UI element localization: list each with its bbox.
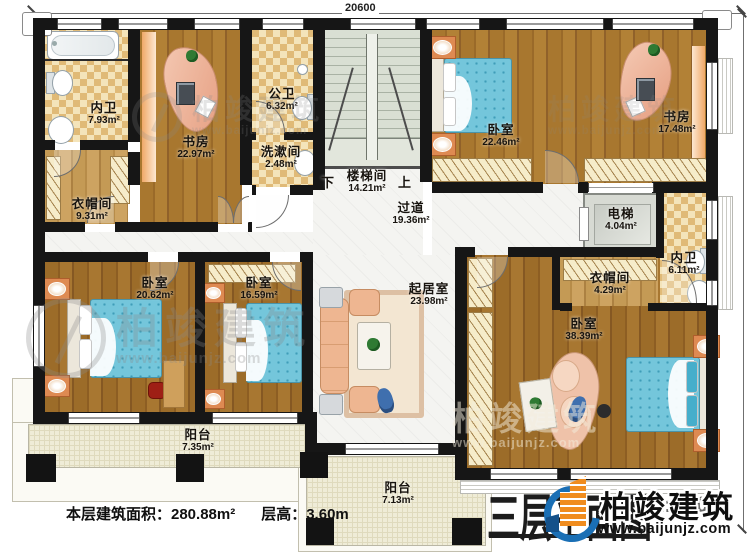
pillow (443, 97, 456, 126)
stair-down-label: 下 (321, 172, 334, 191)
pillow (686, 361, 698, 393)
bed-sheet (90, 318, 116, 376)
wall (578, 182, 588, 193)
wall (420, 30, 432, 182)
wall (45, 140, 55, 150)
floor-area-text: 本层建筑面积：280.88m² (66, 503, 235, 524)
wall (252, 185, 256, 195)
divider (45, 59, 128, 61)
side-table (319, 287, 343, 308)
side-table (319, 394, 343, 415)
right-dimension-line (743, 16, 744, 532)
room-label-master-bedroom: 卧室38.39m² (554, 318, 614, 342)
room-label-study-right: 书房17.48m² (648, 111, 706, 135)
armchair (349, 386, 380, 413)
wall (248, 222, 252, 232)
window (707, 62, 717, 130)
elevator-door (579, 207, 589, 241)
room-label-closet-right: 衣帽间4.29m² (580, 272, 640, 296)
room-label-bathroom-right: 内卫6.11m² (660, 252, 708, 276)
plant (186, 50, 198, 62)
room-label-corridor: 过道19.36m² (386, 202, 436, 226)
window (34, 305, 44, 367)
nightstand (44, 278, 70, 300)
pillar (300, 452, 328, 478)
wall (252, 132, 256, 140)
pillow (235, 308, 247, 338)
wall (313, 30, 325, 190)
window-sill (718, 196, 733, 310)
pillow (79, 305, 92, 335)
room-label-washroom: 洗漱间2.48m² (252, 146, 310, 170)
wall (455, 247, 467, 443)
wall (300, 252, 313, 262)
window (118, 19, 168, 29)
wall (128, 152, 140, 185)
window (262, 19, 304, 29)
nightstand (44, 375, 70, 397)
wardrobe (432, 158, 532, 182)
wall (560, 303, 572, 311)
elevator-entry (588, 183, 654, 192)
window (506, 19, 604, 29)
stair-rail (366, 34, 378, 160)
wall (240, 30, 252, 185)
room-label-balcony-center: 阳台7.13m² (372, 482, 424, 506)
decor-table (519, 378, 558, 432)
wardrobe (468, 312, 493, 466)
side-table (597, 404, 611, 418)
toilet (52, 70, 73, 96)
company-website: www.baijunjz.com (598, 521, 731, 537)
wardrobe (584, 158, 708, 182)
window (57, 19, 102, 29)
window (707, 280, 717, 306)
shower-head (297, 64, 308, 75)
window (426, 19, 480, 29)
floor-plan: 20600 15500 (0, 0, 750, 556)
room-label-bedroom-bl: 卧室20.62m² (126, 277, 184, 301)
pillar (452, 518, 482, 545)
sliding-door (345, 444, 439, 454)
window (212, 413, 298, 423)
wall (652, 182, 718, 193)
wall (284, 132, 313, 140)
room-label-wc: 公卫6.32m² (258, 88, 306, 112)
room-label-bedroom-tr: 卧室22.46m² (472, 124, 530, 148)
window (68, 413, 140, 423)
nightstand (429, 133, 456, 156)
floor-height-text: 层高：3.60m (261, 503, 349, 524)
armchair (349, 289, 380, 316)
pillow (686, 395, 698, 427)
cabinet (692, 46, 705, 158)
wall (115, 222, 218, 232)
room-label-study-left: 书房22.97m² (168, 136, 224, 160)
room-label-staircase: 楼梯间14.21m² (338, 170, 396, 194)
wall (33, 252, 148, 262)
wall (302, 252, 313, 412)
door-arc (256, 195, 289, 228)
footer-stats: 本层建筑面积：280.88m² 层高：3.60m (66, 503, 349, 524)
window (707, 200, 717, 240)
wall (128, 30, 140, 142)
room-label-bathroom-tl: 内卫7.93m² (80, 102, 128, 126)
pillow (79, 339, 92, 369)
nightstand (202, 389, 225, 409)
chaise-cushion (552, 360, 580, 392)
dim-tick (737, 524, 747, 534)
corridor-floor (45, 232, 315, 252)
cabinet (142, 32, 156, 182)
top-dimension-label: 20600 (342, 2, 379, 14)
company-logo-icon (544, 474, 600, 540)
sofa (320, 298, 349, 394)
bathtub (47, 31, 119, 60)
stair-up-label: 上 (398, 172, 411, 191)
wall (178, 252, 270, 262)
pillow (235, 342, 247, 372)
bed-sheet (246, 320, 268, 381)
room-label-closet-left: 衣帽间9.31m² (62, 198, 122, 222)
window (350, 19, 416, 29)
wall (508, 247, 662, 257)
window (612, 19, 694, 29)
nightstand (202, 283, 225, 303)
wall (467, 247, 475, 257)
room-label-elevator: 电梯4.04m² (595, 208, 647, 232)
coffee-table (357, 322, 391, 370)
corridor-floor (432, 182, 584, 256)
top-dimension-line (30, 13, 744, 14)
computer-monitor (636, 78, 655, 101)
wall (290, 185, 313, 195)
window (194, 19, 240, 29)
wall (195, 252, 205, 412)
room-label-balcony-left: 阳台7.35m² (172, 429, 224, 453)
wall (552, 252, 560, 310)
room-label-bedroom-bm: 卧室16.59m² (230, 277, 288, 301)
pillar (26, 454, 56, 482)
nightstand (429, 36, 456, 59)
pillar (176, 454, 204, 482)
computer-monitor (176, 82, 195, 105)
wall (432, 182, 543, 193)
wall (45, 222, 85, 232)
pillow (443, 63, 456, 92)
wall (80, 140, 128, 150)
window-sill (718, 58, 733, 134)
room-label-living-room: 起居室23.98m² (400, 283, 458, 307)
plant (648, 44, 660, 56)
writing-desk (163, 360, 185, 408)
